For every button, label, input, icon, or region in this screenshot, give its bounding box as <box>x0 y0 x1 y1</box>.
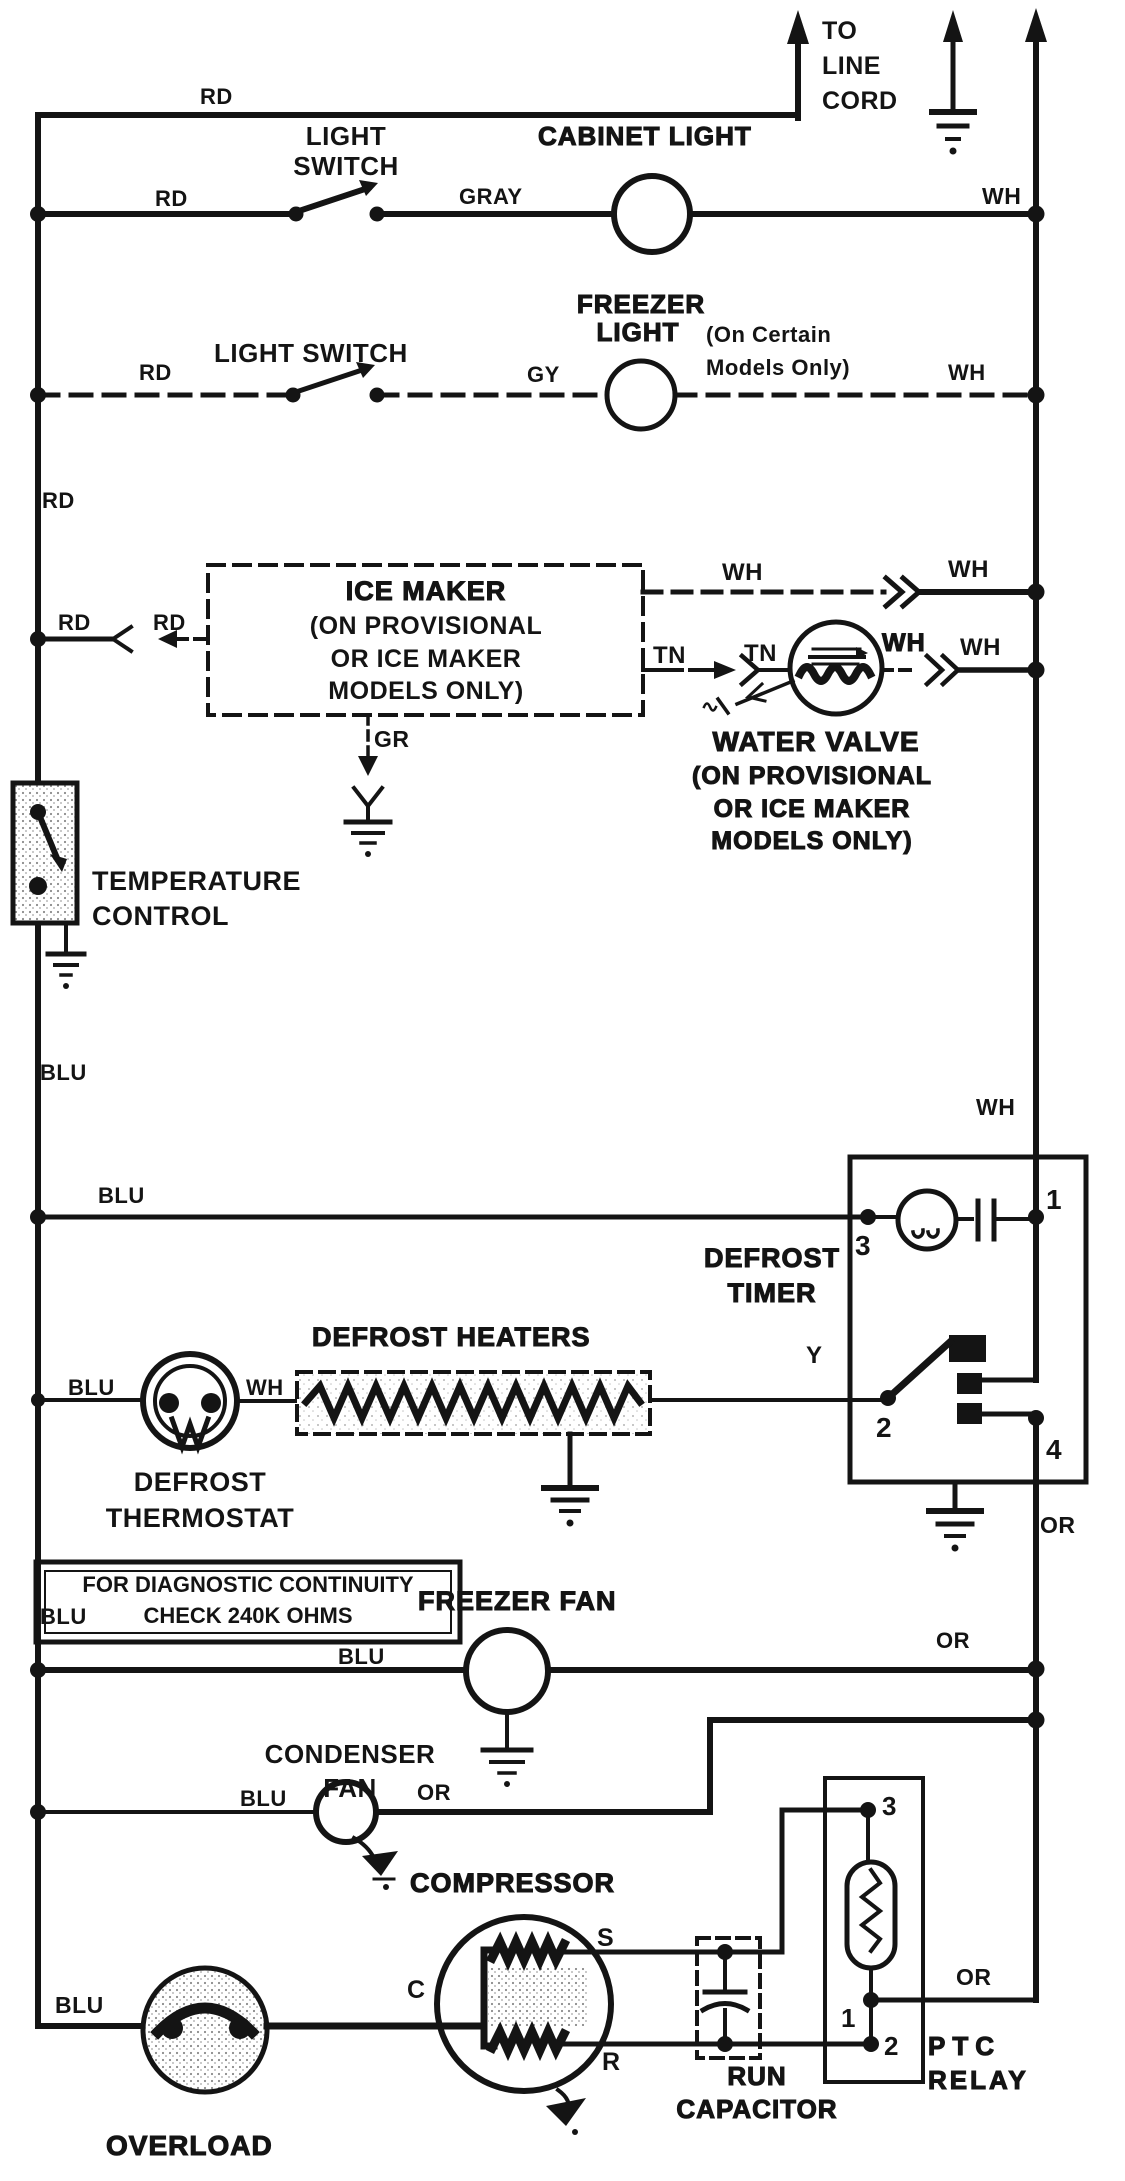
wiring-svg <box>0 0 1125 2181</box>
compressor-start-winding <box>492 1942 564 1960</box>
run-capacitor <box>697 1938 760 2058</box>
wire-color-blu-timer: BLU <box>98 1183 145 1208</box>
diagnostic-note-text: FOR DIAGNOSTIC CONTINUITY CHECK 240K OHM… <box>82 1570 413 1632</box>
ice-maker-box <box>30 565 643 857</box>
timer-terminal-2-label: 2 <box>876 1412 892 1444</box>
ptc-terminal-3-label: 3 <box>882 1792 897 1822</box>
condenser-fan-title: CONDENSER FAN <box>265 1738 436 1806</box>
overload-label: OVERLOAD <box>106 2130 273 2162</box>
compressor-run-winding <box>492 2032 564 2050</box>
ptc-relay-title-2: RELAY <box>928 2066 1029 2096</box>
ptc-terminal-2-label: 2 <box>884 2032 899 2062</box>
wire-color-blu-thermostat: BLU <box>68 1375 115 1400</box>
wire-color-or-ptc: OR <box>956 1964 992 1990</box>
compressor-r-terminal-label: R <box>602 2048 621 2077</box>
timer-motor <box>898 1191 956 1249</box>
to-line-cord-label: TO LINE CORD <box>822 14 898 119</box>
cabinet-light-title: CABINET LIGHT <box>538 122 752 152</box>
wire-color-rd-cabinet: RD <box>155 186 188 211</box>
wire-color-gr: GR <box>374 726 410 752</box>
wire-color-blu-freezer-fan: BLU <box>338 1644 385 1669</box>
wire-color-wh-valve-left: WH <box>882 629 926 658</box>
wire-color-blu-condenser: BLU <box>240 1786 287 1811</box>
wire-color-gray: GRAY <box>459 184 523 209</box>
freezer-fan-title: FREEZER FAN <box>418 1586 617 1617</box>
wire-color-wh-timer: WH <box>976 1094 1015 1120</box>
compressor-s-terminal-label: S <box>597 1924 614 1953</box>
wire-color-wh-valve-right: WH <box>960 634 1001 662</box>
freezer-fan-circuit <box>30 1630 1045 1787</box>
water-valve-subtitle: (ON PROVISIONAL OR ICE MAKER MODELS ONLY… <box>692 760 932 858</box>
freezer-light-bulb <box>607 361 675 429</box>
wire-color-rd-icemaker-outer: RD <box>58 610 91 635</box>
freezer-light-switch-label: LIGHT SWITCH <box>214 339 408 369</box>
timer-switch-blade <box>888 1342 950 1398</box>
ptc-terminal-1-label: 1 <box>841 2004 856 2034</box>
wire-color-blu-rail-lower: BLU <box>40 1604 87 1629</box>
cabinet-light-switch-label: LIGHT SWITCH <box>293 122 399 182</box>
run-capacitor-label: RUN CAPACITOR <box>676 2060 837 2126</box>
freezer-light-title-2: LIGHT <box>597 318 680 348</box>
wire-color-or-condenser: OR <box>417 1780 451 1805</box>
defrost-heaters-title: DEFROST HEATERS <box>312 1322 591 1353</box>
wire-color-wh-icemaker-right: WH <box>948 556 989 584</box>
freezer-light-title-1: FREEZER <box>577 290 705 320</box>
wire-color-rd-freezer: RD <box>139 360 172 385</box>
wire-color-rd-top: RD <box>200 84 233 109</box>
timer-terminal-4 <box>1028 1410 1044 1426</box>
wire-color-or-timer: OR <box>1040 1512 1076 1538</box>
wire-color-wh-freezer: WH <box>948 360 986 385</box>
ptc-relay-title-1: PTC <box>928 2032 1001 2062</box>
wire-color-gy: GY <box>527 362 560 387</box>
cabinet-light-bulb <box>614 176 690 252</box>
wiring-diagram: TO LINE CORD RD CABINET LIGHT LIGHT SWIT… <box>0 0 1125 2181</box>
wire-color-or-freezer-fan: OR <box>936 1628 970 1653</box>
temperature-control-switch <box>13 783 84 989</box>
timer-terminal-4-label: 4 <box>1046 1434 1062 1466</box>
wire-color-y: Y <box>806 1342 823 1370</box>
wire-color-tn-right: TN <box>744 640 777 668</box>
defrost-thermostat-body <box>143 1354 237 1448</box>
wire-color-wh-cabinet: WH <box>982 183 1021 209</box>
defrost-timer-title: DEFROST TIMER <box>704 1241 840 1311</box>
freezer-light-switch-contact <box>286 388 301 403</box>
ice-maker-title: ICE MAKER <box>346 576 507 607</box>
freezer-light-note: (On Certain Models Only) <box>706 318 850 384</box>
timer-terminal-1-label: 1 <box>1046 1184 1062 1216</box>
wire-color-blu-overload: BLU <box>55 1992 104 2018</box>
defrost-thermostat-title: DEFROST THERMOSTAT <box>106 1464 294 1537</box>
timer-terminal-1 <box>1028 1209 1044 1225</box>
compressor-c-terminal-label: C <box>407 1976 426 2005</box>
water-valve-title: WATER VALVE <box>713 726 920 758</box>
timer-terminal-3-label: 3 <box>855 1230 871 1262</box>
wire-color-rd-icemaker-inner: RD <box>153 610 186 635</box>
compressor-core <box>488 1968 588 2026</box>
ptc-terminal-2 <box>863 2036 879 2052</box>
ice-maker-subtitle: (ON PROVISIONAL OR ICE MAKER MODELS ONLY… <box>310 610 543 708</box>
temperature-control-label: TEMPERATURE CONTROL <box>92 864 301 933</box>
compressor-title: COMPRESSOR <box>410 1868 615 1899</box>
wire-color-rd-rail: RD <box>42 488 75 513</box>
cabinet-light-switch-contact <box>289 207 304 222</box>
wire-color-wh-icemaker-left: WH <box>722 559 763 587</box>
wire-color-tn-left: TN <box>653 642 686 670</box>
wire-color-blu-rail-upper: BLU <box>40 1060 87 1085</box>
freezer-fan-motor <box>466 1630 548 1712</box>
wire-color-wh-thermostat: WH <box>246 1375 284 1400</box>
